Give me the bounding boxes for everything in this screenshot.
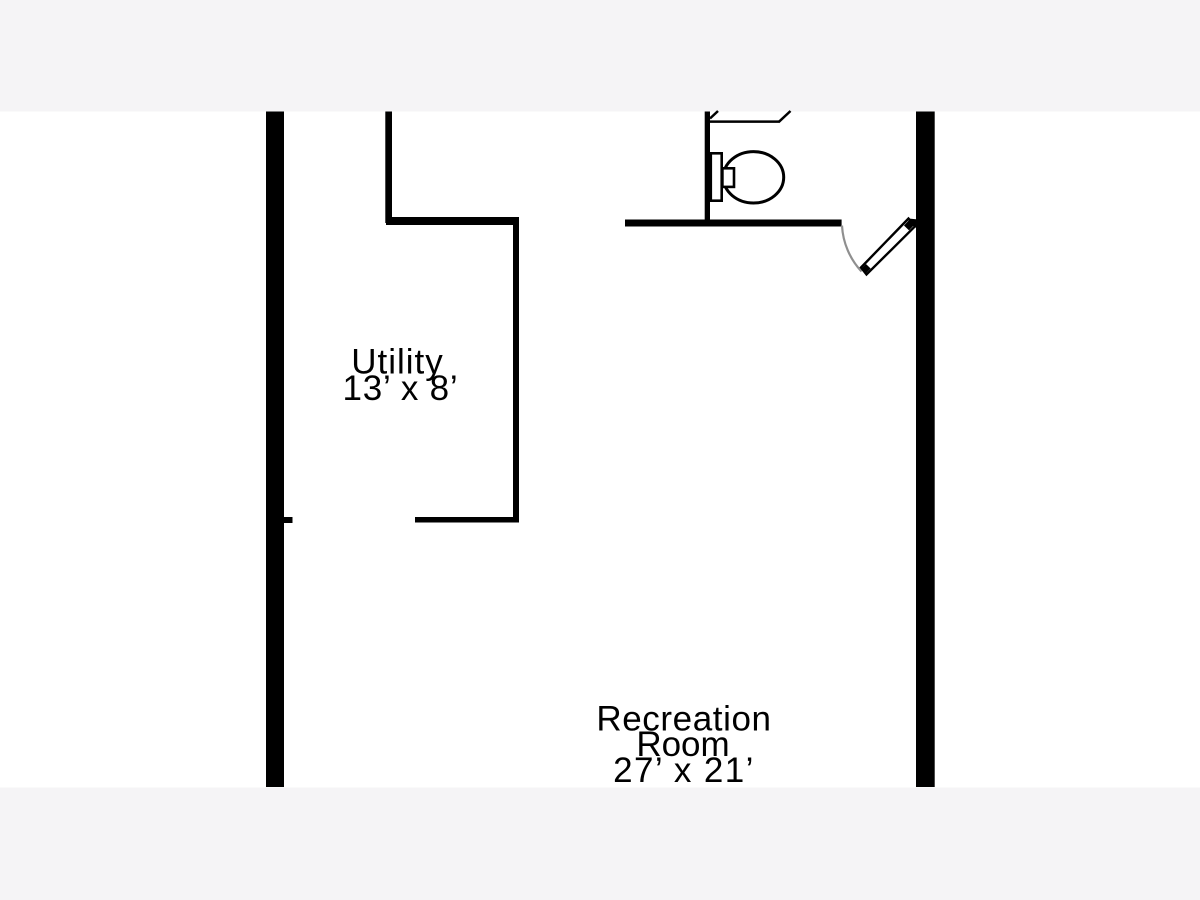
svg-text:27’ x 21’: 27’ x 21’ [613, 751, 755, 790]
svg-text:13’ x 8’: 13’ x 8’ [343, 369, 459, 408]
